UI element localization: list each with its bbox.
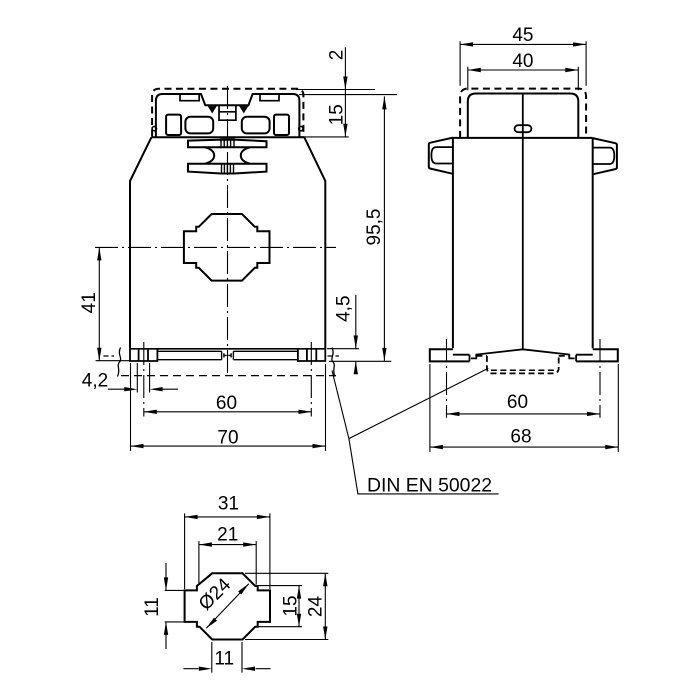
svg-text:60: 60 bbox=[507, 392, 528, 413]
svg-text:15: 15 bbox=[327, 104, 348, 125]
svg-text:24: 24 bbox=[306, 596, 327, 618]
svg-text:45: 45 bbox=[512, 25, 533, 46]
svg-text:2: 2 bbox=[327, 50, 348, 61]
svg-text:11: 11 bbox=[142, 597, 163, 617]
svg-text:95,5: 95,5 bbox=[364, 209, 385, 246]
svg-text:4,5: 4,5 bbox=[334, 295, 355, 321]
svg-text:41: 41 bbox=[79, 292, 100, 313]
svg-text:68: 68 bbox=[510, 427, 531, 448]
svg-text:Ø24: Ø24 bbox=[195, 574, 236, 615]
svg-text:40: 40 bbox=[512, 51, 533, 72]
svg-text:21: 21 bbox=[217, 525, 238, 546]
svg-text:60: 60 bbox=[216, 393, 237, 414]
svg-text:31: 31 bbox=[218, 494, 239, 515]
svg-text:4,2: 4,2 bbox=[82, 371, 108, 392]
svg-text:11: 11 bbox=[214, 649, 234, 670]
svg-text:70: 70 bbox=[217, 428, 238, 449]
svg-text:15: 15 bbox=[281, 595, 302, 616]
svg-text:DIN EN 50022: DIN EN 50022 bbox=[367, 474, 492, 496]
